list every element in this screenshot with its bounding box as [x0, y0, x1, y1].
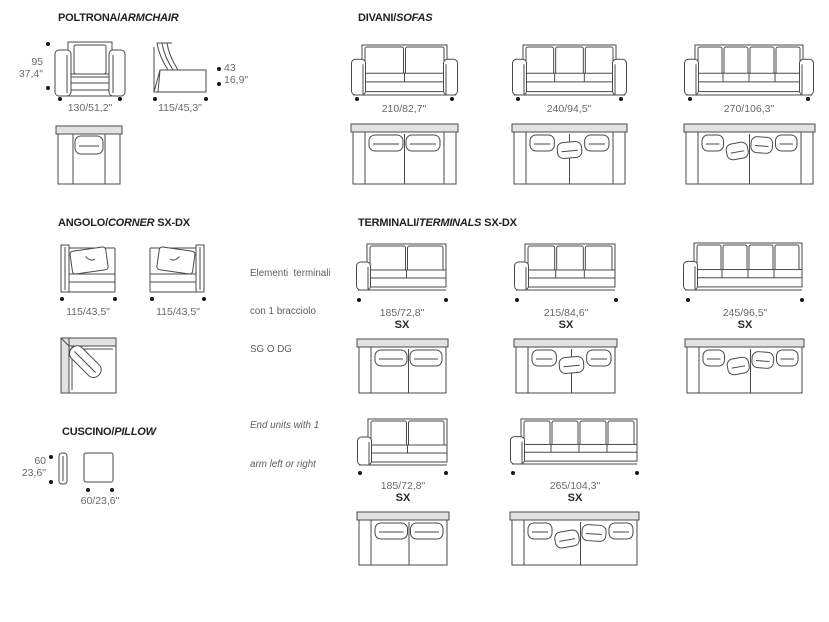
end-units-note: Elementi terminali con 1 bracciolo SG O … — [250, 242, 360, 497]
corner-dx-front-dimension-label: 115/43,5" — [133, 306, 223, 318]
sofa-270-top-drawing — [684, 122, 815, 186]
armchair-side-side-dimension: 4316,9" — [224, 63, 264, 86]
terminal-265-front-variant-label: SX — [530, 492, 620, 504]
title-terminali-suffix: SX-DX — [481, 217, 516, 229]
dimension-dot — [635, 471, 639, 475]
terminal-245-top-drawing — [685, 337, 804, 395]
terminal-215-front-variant-label: SX — [521, 319, 611, 331]
dimension-dot — [118, 97, 122, 101]
sofa-240-front-dimension-label: 240/94,5" — [524, 103, 614, 115]
dimension-dot — [511, 471, 515, 475]
dimension-dot — [204, 97, 208, 101]
dimension-dot — [450, 97, 454, 101]
terminal-245-front-drawing — [683, 241, 804, 292]
dimension-dot — [60, 297, 64, 301]
terminal-265-top-drawing — [510, 510, 639, 567]
dimension-dot — [619, 97, 623, 101]
dimension-dot — [46, 42, 50, 46]
title-poltrona-it: POLTRONA/ — [58, 12, 120, 24]
dimension-dot — [515, 298, 519, 302]
title-terminali-it: TERMINALI/ — [358, 217, 419, 229]
corner-top-drawing — [60, 337, 117, 394]
terminal-245-front-variant-label: SX — [700, 319, 790, 331]
dimension-dot — [110, 488, 114, 492]
dimension-dot — [58, 97, 62, 101]
section-title-poltrona: POLTRONA/ARMCHAIR — [58, 12, 178, 24]
dimension-dot — [358, 471, 362, 475]
terminal-185-front-drawing — [356, 242, 448, 292]
corner-sx-front-dimension-label: 115/43,5" — [43, 306, 133, 318]
sofa-210-top-drawing — [351, 122, 458, 186]
dimension-dot — [800, 298, 804, 302]
dimension-dot — [150, 297, 154, 301]
armchair-top-drawing — [56, 124, 122, 186]
terminal2-185-front-dimension-label: 185/72,8" — [358, 480, 448, 492]
title-divani-it: DIVANI/ — [358, 12, 396, 24]
title-poltrona-en: ARMCHAIR — [120, 12, 178, 24]
note-line-en-1: End units with 1 — [250, 420, 360, 433]
dimension-dot — [217, 82, 221, 86]
armchair-side-side-dimension-line: 16,9" — [224, 75, 264, 87]
dimension-dot — [86, 488, 90, 492]
dimension-dot — [357, 298, 361, 302]
terminal-265-front-drawing — [510, 417, 639, 466]
terminal2-185-top-drawing — [357, 510, 449, 567]
terminal-185-front-variant-label: SX — [357, 319, 447, 331]
title-angolo-en: CORNER — [108, 217, 154, 229]
pillow-front-drawing — [83, 452, 114, 484]
title-angolo-suffix: SX-DX — [154, 217, 189, 229]
sofa-240-front-drawing — [512, 43, 627, 97]
sofa-210-front-drawing — [351, 43, 458, 97]
title-angolo-it: ANGOLO/ — [58, 217, 108, 229]
dimension-dot — [46, 86, 50, 90]
dimension-dot — [355, 97, 359, 101]
pillow-front-dimension-label: 60/23,6" — [55, 495, 145, 507]
section-title-terminali: TERMINALI/TERMINALS SX-DX — [358, 217, 517, 229]
pillow-side-drawing — [57, 452, 69, 485]
section-title-divani: DIVANI/SOFAS — [358, 12, 432, 24]
terminal-185-top-drawing — [357, 337, 448, 395]
armchair-front-side-dimension-line: 95 — [8, 57, 43, 69]
dimension-dot — [49, 455, 53, 459]
corner-sx-front-drawing — [59, 243, 117, 295]
terminal-215-top-drawing — [514, 337, 617, 395]
dimension-dot — [614, 298, 618, 302]
dimension-dot — [688, 97, 692, 101]
dimension-dot — [153, 97, 157, 101]
armchair-front-drawing — [54, 40, 126, 97]
terminal-185-front-dimension-label: 185/72,8" — [357, 307, 447, 319]
title-cuscino-en: PILLOW — [114, 426, 156, 438]
title-cuscino-it: CUSCINO/ — [62, 426, 114, 438]
armchair-side-dimension-label: 115/45,3" — [135, 102, 225, 114]
section-title-angolo: ANGOLO/CORNER SX-DX — [58, 217, 190, 229]
dimension-dot — [444, 298, 448, 302]
sofa-210-front-dimension-label: 210/82,7" — [359, 103, 449, 115]
armchair-front-dimension-label: 130/51,2" — [45, 102, 135, 114]
dimension-dot — [202, 297, 206, 301]
armchair-side-drawing — [150, 41, 208, 96]
terminal-215-front-dimension-label: 215/84,6" — [521, 307, 611, 319]
sofa-240-top-drawing — [512, 122, 627, 186]
pillow-side-side-dimension-line: 23,6" — [12, 468, 46, 480]
dimension-dot — [49, 480, 53, 484]
dimension-dot — [217, 67, 221, 71]
corner-dx-front-drawing — [148, 243, 206, 295]
dimension-dot — [516, 97, 520, 101]
dimension-dot — [113, 297, 117, 301]
dimension-dot — [686, 298, 690, 302]
sofa-270-front-drawing — [684, 43, 814, 97]
pillow-side-side-dimension-line: 60 — [12, 456, 46, 468]
armchair-front-side-dimension: 9537,4" — [8, 57, 43, 80]
note-line-it-3: SG O DG — [250, 344, 360, 357]
terminal-245-front-dimension-label: 245/96,5" — [700, 307, 790, 319]
title-divani-en: SOFAS — [396, 12, 432, 24]
dimension-dot — [806, 97, 810, 101]
note-line-en-2: arm left or right — [250, 459, 360, 472]
section-title-cuscino: CUSCINO/PILLOW — [62, 426, 156, 438]
title-terminali-en: TERMINALS — [419, 217, 481, 229]
pillow-side-side-dimension: 6023,6" — [12, 456, 46, 479]
note-line-it-2: con 1 bracciolo — [250, 306, 360, 319]
sofa-270-front-dimension-label: 270/106,3" — [704, 103, 794, 115]
terminal-215-front-drawing — [514, 242, 617, 292]
dimension-dot — [444, 471, 448, 475]
armchair-front-side-dimension-line: 37,4" — [8, 69, 43, 81]
furniture-spec-sheet: POLTRONA/ARMCHAIR DIVANI/SOFAS ANGOLO/CO… — [0, 0, 829, 622]
armchair-side-side-dimension-line: 43 — [224, 63, 264, 75]
terminal2-185-front-drawing — [357, 417, 449, 467]
terminal2-185-front-variant-label: SX — [358, 492, 448, 504]
terminal-265-front-dimension-label: 265/104,3" — [530, 480, 620, 492]
note-spacer — [250, 383, 360, 395]
note-line-it-1: Elementi terminali — [250, 268, 360, 281]
